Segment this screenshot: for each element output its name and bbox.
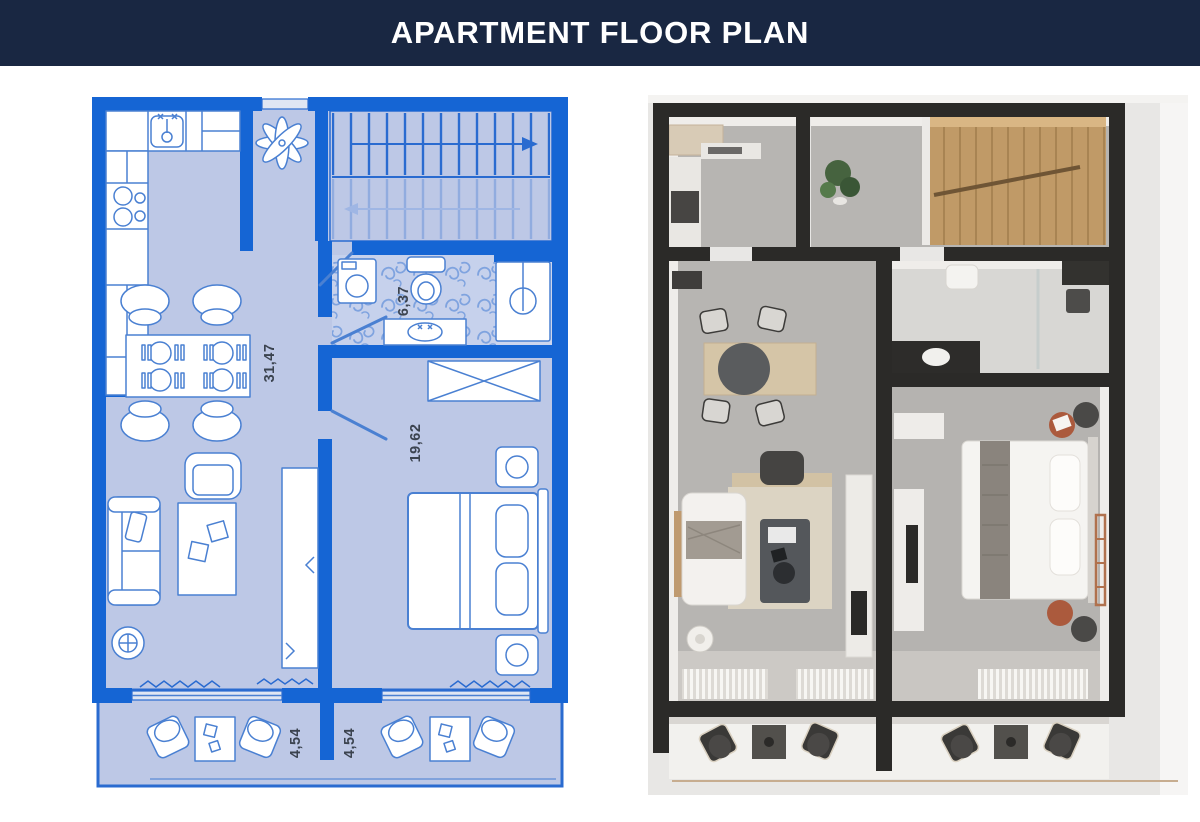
side-table-rust [1047,600,1073,626]
render-svg [648,95,1188,795]
round-rug [718,343,770,395]
tv [851,591,867,635]
bedroom-area-label: 19,62 [408,424,424,463]
entry-console [672,271,702,289]
bedroom-tv [906,525,918,583]
plant-icon [256,117,308,169]
blueprint-svg: 31,47 19,62 6,37 4,54 4,54 [90,95,570,795]
cooktop-hob [708,147,742,154]
office-chair [760,451,804,485]
tv-unit [282,468,318,668]
curtains [796,669,874,699]
bath-shelf [1062,261,1109,285]
balcony-table [430,717,470,761]
staircase [330,111,552,241]
sofa [108,497,160,605]
balcony-left-area-label: 4,54 [288,728,304,758]
render-3d-floor-plan [648,95,1188,795]
curtains [682,669,768,699]
entry-door-opening [262,99,308,109]
side-table-dark [1073,402,1099,428]
living-area-label: 31,47 [262,344,278,383]
curtains [978,669,1088,699]
balcony-table [195,717,235,761]
vanity-sink [922,348,950,366]
kitchen-appliance [671,191,699,223]
side-table-dark [1071,616,1097,642]
pillow [496,505,528,557]
blueprint-floor-plan: 31,47 19,62 6,37 4,54 4,54 [90,95,570,795]
page-title: APARTMENT FLOOR PLAN [391,15,809,51]
headboard [538,489,548,633]
toilet [407,257,445,272]
render-pillow [1050,455,1080,511]
balcony-right-area-label: 4,54 [342,728,358,758]
bathroom-area-label: 6,37 [396,286,412,316]
floor-lamp [112,627,144,659]
shower-head [1066,289,1090,313]
render-pillow [1050,519,1080,575]
dresser [894,413,944,439]
pillow [496,563,528,615]
title-banner: APARTMENT FLOOR PLAN [0,0,1200,66]
render-toilet [946,265,978,289]
